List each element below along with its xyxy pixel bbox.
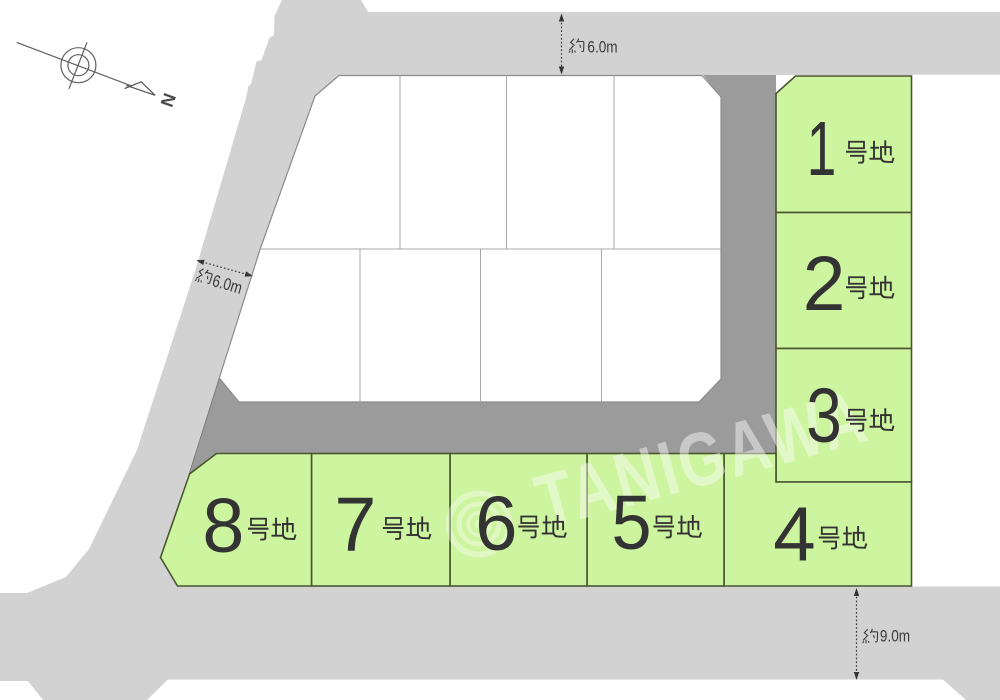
svg-text:2: 2 (803, 241, 846, 327)
svg-text:5: 5 (611, 479, 651, 566)
svg-text:6.0m: 6.0m (587, 38, 617, 57)
svg-text:6: 6 (475, 482, 517, 567)
svg-text:3: 3 (806, 372, 842, 458)
svg-text:9.0m: 9.0m (880, 627, 910, 646)
svg-text:8: 8 (202, 483, 244, 569)
svg-text:7: 7 (334, 482, 376, 568)
svg-text:N: N (156, 90, 179, 109)
svg-text:4: 4 (773, 492, 815, 577)
svg-text:1: 1 (807, 106, 837, 192)
